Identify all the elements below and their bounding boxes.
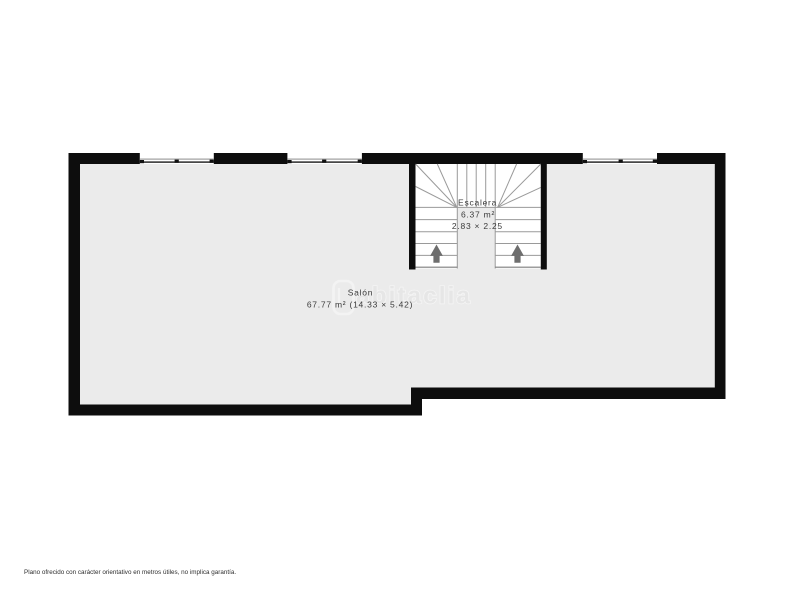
svg-text:Plano ofrecido con carácter or: Plano ofrecido con carácter orientativo … [24, 569, 236, 576]
svg-text:Escalera: Escalera [458, 197, 497, 207]
svg-text:6.37 m²: 6.37 m² [461, 210, 495, 220]
svg-text:Salón: Salón [348, 287, 374, 297]
svg-text:2.83 × 2.25: 2.83 × 2.25 [452, 221, 503, 231]
svg-text:67.77 m² (14.33 × 5.42): 67.77 m² (14.33 × 5.42) [307, 299, 413, 309]
